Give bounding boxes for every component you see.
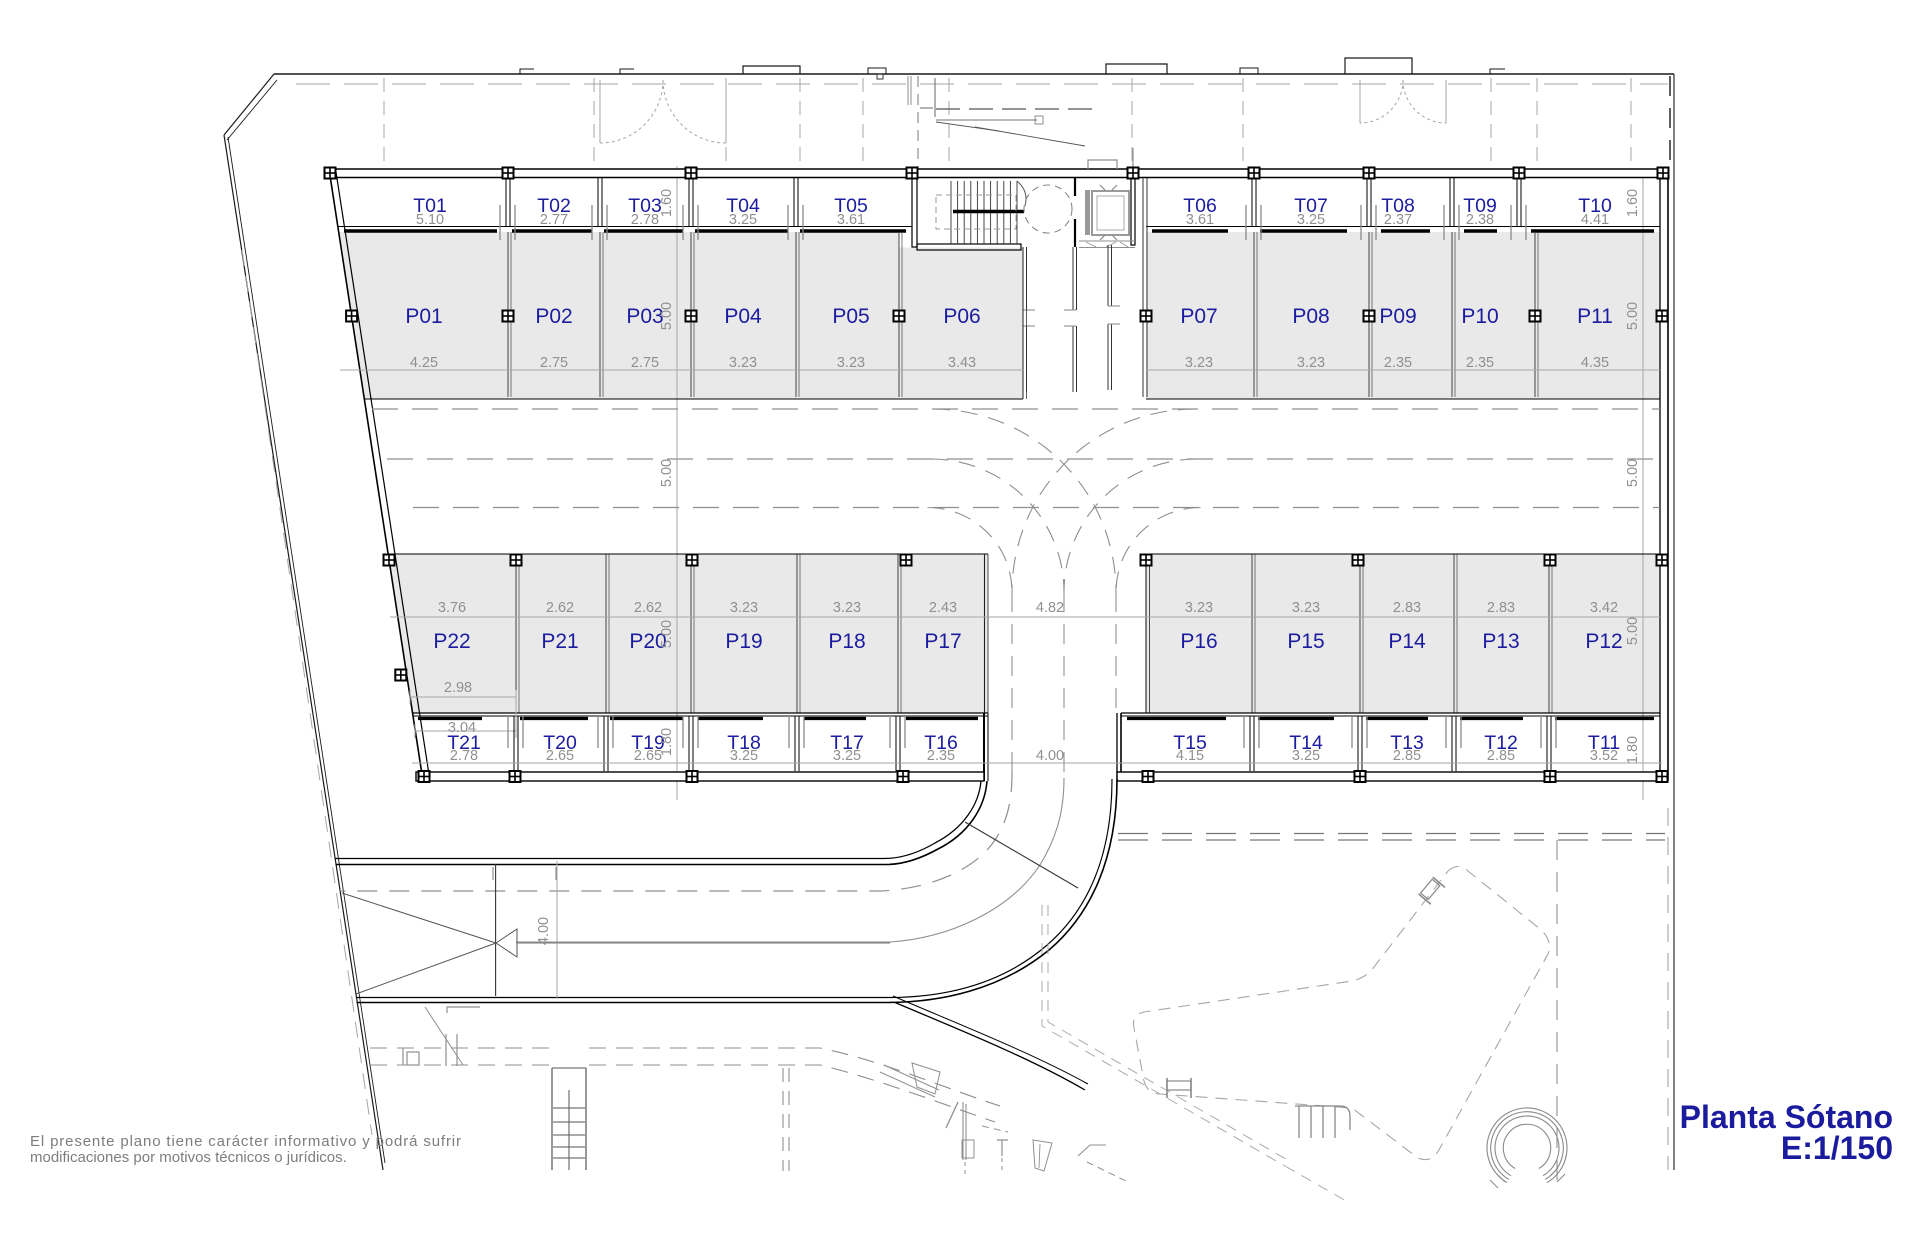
svg-text:2.78: 2.78	[631, 212, 659, 228]
svg-text:2.37: 2.37	[1384, 212, 1412, 228]
svg-text:5.10: 5.10	[416, 212, 444, 228]
svg-text:4.00: 4.00	[536, 917, 552, 945]
svg-text:modificaciones por motivos téc: modificaciones por motivos técnicos o ju…	[30, 1149, 347, 1166]
svg-text:5.00: 5.00	[659, 302, 675, 330]
svg-text:2.62: 2.62	[634, 600, 662, 616]
svg-text:5.00: 5.00	[1625, 302, 1641, 330]
svg-text:1.60: 1.60	[659, 189, 675, 217]
svg-text:2.35: 2.35	[1384, 355, 1412, 371]
svg-text:1.60: 1.60	[1625, 189, 1641, 217]
svg-text:1.80: 1.80	[1625, 736, 1641, 764]
svg-text:3.42: 3.42	[1590, 600, 1618, 616]
svg-text:5.00: 5.00	[1625, 459, 1641, 487]
svg-text:P09: P09	[1379, 305, 1416, 328]
svg-text:2.65: 2.65	[634, 748, 662, 764]
svg-text:P02: P02	[535, 305, 572, 328]
svg-text:2.62: 2.62	[546, 600, 574, 616]
svg-text:3.25: 3.25	[833, 748, 861, 764]
svg-text:5.00: 5.00	[659, 459, 675, 487]
svg-text:3.23: 3.23	[1297, 355, 1325, 371]
svg-text:3.25: 3.25	[1297, 212, 1325, 228]
svg-text:P18: P18	[828, 630, 865, 653]
svg-text:3.23: 3.23	[1185, 600, 1213, 616]
svg-text:3.61: 3.61	[837, 212, 865, 228]
svg-text:2.98: 2.98	[444, 680, 472, 696]
svg-text:3.23: 3.23	[729, 355, 757, 371]
svg-text:P01: P01	[405, 305, 442, 328]
svg-text:3.23: 3.23	[730, 600, 758, 616]
svg-text:5.00: 5.00	[1625, 617, 1641, 645]
svg-text:3.76: 3.76	[438, 600, 466, 616]
svg-text:P21: P21	[541, 630, 578, 653]
svg-text:P14: P14	[1388, 630, 1426, 653]
svg-text:P15: P15	[1287, 630, 1324, 653]
svg-text:P16: P16	[1180, 630, 1217, 653]
svg-text:2.43: 2.43	[929, 600, 957, 616]
svg-text:2.65: 2.65	[546, 748, 574, 764]
svg-text:2.77: 2.77	[540, 212, 568, 228]
svg-text:3.61: 3.61	[1186, 212, 1214, 228]
svg-text:El presente plano tiene caráct: El presente plano tiene carácter informa…	[30, 1133, 461, 1150]
svg-text:2.83: 2.83	[1487, 600, 1515, 616]
svg-text:P06: P06	[943, 305, 980, 328]
svg-text:3.23: 3.23	[833, 600, 861, 616]
svg-text:P13: P13	[1482, 630, 1519, 653]
svg-text:2.85: 2.85	[1487, 748, 1515, 764]
svg-text:2.35: 2.35	[927, 748, 955, 764]
svg-text:4.15: 4.15	[1176, 748, 1204, 764]
svg-text:E:1/150: E:1/150	[1781, 1130, 1893, 1166]
svg-text:3.25: 3.25	[729, 212, 757, 228]
svg-text:2.75: 2.75	[631, 355, 659, 371]
svg-text:P11: P11	[1577, 305, 1613, 328]
svg-text:3.52: 3.52	[1590, 748, 1618, 764]
svg-text:2.35: 2.35	[1466, 355, 1494, 371]
svg-text:P22: P22	[433, 630, 470, 653]
svg-text:3.23: 3.23	[1185, 355, 1213, 371]
svg-text:4.35: 4.35	[1581, 355, 1609, 371]
svg-text:3.43: 3.43	[948, 355, 976, 371]
svg-text:P04: P04	[724, 305, 762, 328]
svg-text:4.41: 4.41	[1581, 212, 1609, 228]
svg-text:4.00: 4.00	[1036, 748, 1064, 764]
svg-text:P12: P12	[1585, 630, 1622, 653]
svg-text:3.23: 3.23	[1292, 600, 1320, 616]
svg-text:P17: P17	[924, 630, 961, 653]
svg-text:1.80: 1.80	[659, 728, 675, 756]
svg-text:3.25: 3.25	[1292, 748, 1320, 764]
svg-text:2.78: 2.78	[450, 748, 478, 764]
svg-text:3.25: 3.25	[730, 748, 758, 764]
svg-text:3.04: 3.04	[448, 720, 476, 736]
svg-text:P05: P05	[832, 305, 869, 328]
svg-text:P07: P07	[1180, 305, 1217, 328]
svg-text:P10: P10	[1461, 305, 1498, 328]
svg-text:P08: P08	[1292, 305, 1329, 328]
svg-text:5.00: 5.00	[659, 620, 675, 648]
svg-text:4.25: 4.25	[410, 355, 438, 371]
svg-text:P19: P19	[725, 630, 762, 653]
svg-text:2.38: 2.38	[1466, 212, 1494, 228]
svg-text:2.85: 2.85	[1393, 748, 1421, 764]
svg-text:3.23: 3.23	[837, 355, 865, 371]
svg-text:2.75: 2.75	[540, 355, 568, 371]
svg-text:2.83: 2.83	[1393, 600, 1421, 616]
svg-text:4.82: 4.82	[1036, 600, 1064, 616]
